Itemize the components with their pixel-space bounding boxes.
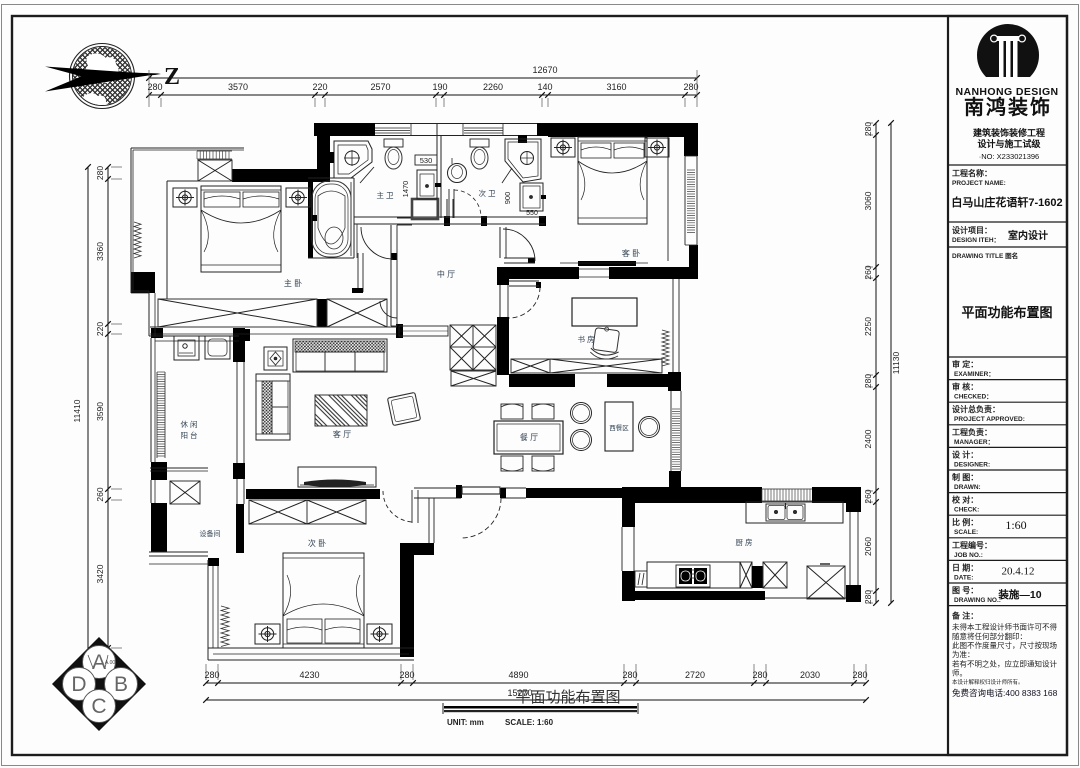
svg-text:免费咨询电话:400 8383 168: 免费咨询电话:400 8383 168 — [952, 688, 1058, 698]
svg-text:11410: 11410 — [72, 399, 82, 422]
svg-text:平面功能布置图: 平面功能布置图 — [515, 689, 620, 706]
svg-text:PROJECT APPROVED:: PROJECT APPROVED: — [954, 416, 1025, 423]
svg-text:南鸿装饰: 南鸿装饰 — [964, 95, 1052, 119]
svg-text:设计项目：: 设计项目： — [952, 225, 992, 235]
svg-text:280: 280 — [399, 670, 414, 680]
svg-text:MANAGER：: MANAGER： — [954, 439, 994, 446]
svg-text:280: 280 — [622, 670, 637, 680]
svg-text:280: 280 — [863, 122, 873, 136]
svg-text:设备间: 设备间 — [200, 529, 221, 538]
svg-text:图 号：: 图 号： — [952, 586, 978, 595]
svg-text:3160: 3160 — [606, 82, 626, 92]
svg-text:UNIT: mm: UNIT: mm — [447, 718, 484, 727]
svg-text:220: 220 — [312, 82, 327, 92]
svg-text:客 卧: 客 卧 — [622, 248, 640, 258]
svg-text:CHECKED：: CHECKED： — [954, 394, 993, 401]
svg-text:3590: 3590 — [95, 402, 105, 421]
svg-text:20.4.12: 20.4.12 — [1002, 565, 1035, 577]
svg-text:休 闲: 休 闲 — [180, 419, 197, 429]
svg-text:2400: 2400 — [863, 429, 873, 448]
svg-text:SCALE:: SCALE: — [954, 529, 978, 536]
svg-text:工程名称：: 工程名称： — [952, 168, 992, 178]
svg-text:DESIGNER:: DESIGNER: — [954, 461, 990, 468]
svg-text:2030: 2030 — [800, 670, 820, 680]
svg-text:DATE:: DATE: — [954, 574, 973, 581]
svg-text:280: 280 — [863, 374, 873, 388]
svg-text:A.00: A.00 — [105, 660, 116, 666]
svg-text:280: 280 — [683, 82, 698, 92]
svg-text:190: 190 — [432, 82, 447, 92]
svg-text:审 定：: 审 定： — [952, 359, 978, 369]
svg-text:中 厅: 中 厅 — [437, 269, 455, 279]
svg-text:日 期：: 日 期： — [952, 562, 978, 572]
svg-text:比 例：: 比 例： — [952, 517, 978, 527]
svg-text:D: D — [71, 673, 86, 696]
svg-text:1470: 1470 — [401, 181, 410, 198]
svg-text:280: 280 — [95, 166, 105, 180]
svg-text:·NO: X233021396: ·NO: X233021396 — [979, 152, 1039, 161]
svg-text:室内设计: 室内设计 — [1008, 229, 1048, 242]
svg-text:SCALE: 1:60: SCALE: 1:60 — [505, 718, 554, 727]
svg-text:CHECK:: CHECK: — [954, 507, 979, 514]
svg-text:DESIGN ITEH：: DESIGN ITEH： — [952, 237, 1000, 244]
svg-text:书 房: 书 房 — [577, 334, 594, 344]
svg-text:280: 280 — [863, 590, 873, 604]
svg-text:280: 280 — [752, 670, 767, 680]
svg-text:校 对：: 校 对： — [952, 495, 978, 505]
svg-text:师。: 师。 — [952, 668, 967, 678]
svg-text:未得本工程设计师书面许可不得: 未得本工程设计师书面许可不得 — [952, 622, 1057, 632]
svg-text:2720: 2720 — [685, 670, 705, 680]
svg-text:3570: 3570 — [228, 82, 248, 92]
svg-text:白马山庄花语轩7-1602: 白马山庄花语轩7-1602 — [951, 195, 1062, 209]
svg-text:本设计解释权归设计师所有。: 本设计解释权归设计师所有。 — [952, 678, 1024, 686]
svg-text:DRAWING NO.:: DRAWING NO.: — [954, 597, 1001, 604]
svg-text:3360: 3360 — [95, 242, 105, 261]
svg-text:550: 550 — [526, 210, 538, 217]
svg-text:设计与施工试级: 设计与施工试级 — [977, 138, 1041, 149]
svg-text:280: 280 — [204, 670, 219, 680]
svg-text:厨 房: 厨 房 — [735, 537, 752, 547]
svg-text:西餐区: 西餐区 — [609, 423, 629, 432]
svg-text:260: 260 — [95, 487, 105, 501]
svg-text:设 计：: 设 计： — [952, 449, 978, 459]
svg-text:900: 900 — [503, 192, 512, 205]
svg-text:装施—10: 装施—10 — [997, 588, 1041, 601]
svg-text:2260: 2260 — [483, 82, 503, 92]
svg-text:280: 280 — [852, 670, 867, 680]
svg-text:4230: 4230 — [299, 670, 319, 680]
svg-text:设计总负责：: 设计总负责： — [952, 404, 1000, 414]
svg-text:主 卫: 主 卫 — [376, 190, 394, 200]
svg-text:11130: 11130 — [891, 352, 901, 375]
svg-text:主 卧: 主 卧 — [284, 278, 302, 288]
svg-text:140: 140 — [537, 82, 552, 92]
svg-text:工程编号：: 工程编号： — [952, 540, 992, 550]
svg-text:3060: 3060 — [863, 191, 873, 210]
svg-text:2060: 2060 — [863, 537, 873, 556]
svg-text:4890: 4890 — [508, 670, 528, 680]
svg-text:阳 台: 阳 台 — [180, 430, 197, 440]
svg-text:B: B — [114, 673, 128, 696]
svg-text:次 卫: 次 卫 — [478, 188, 496, 198]
svg-text:平面功能布置图: 平面功能布置图 — [961, 305, 1052, 320]
svg-text:530: 530 — [420, 156, 433, 165]
svg-text:DRAWN:: DRAWN: — [954, 484, 981, 491]
svg-text:客 厅: 客 厅 — [333, 429, 351, 439]
svg-text:建筑装饰装修工程: 建筑装饰装修工程 — [973, 127, 1045, 138]
svg-text:260: 260 — [863, 489, 873, 503]
svg-text:1:60: 1:60 — [1005, 518, 1026, 532]
svg-text:若有不明之处，应立即通知设计: 若有不明之处，应立即通知设计 — [952, 658, 1057, 668]
svg-text:PROJECT NAME:: PROJECT NAME: — [952, 180, 1006, 187]
svg-text:2250: 2250 — [863, 317, 873, 336]
svg-text:2570: 2570 — [370, 82, 390, 92]
svg-text:制 图：: 制 图： — [952, 472, 978, 482]
svg-text:EXAMINER：: EXAMINER： — [954, 371, 995, 378]
svg-text:280: 280 — [147, 82, 162, 92]
svg-text:12670: 12670 — [532, 65, 557, 75]
svg-text:备 注：: 备 注： — [951, 611, 978, 621]
svg-text:JOB NO.:: JOB NO.: — [954, 552, 983, 559]
svg-text:审 核：: 审 核： — [952, 382, 978, 392]
svg-text:工程负责：: 工程负责： — [952, 427, 992, 437]
svg-text:C: C — [91, 695, 106, 718]
svg-text:随意将任何部分翻印：: 随意将任何部分翻印： — [952, 631, 1027, 641]
svg-text:220: 220 — [95, 322, 105, 336]
svg-text:Z: Z — [164, 64, 180, 90]
svg-text:260: 260 — [863, 265, 873, 279]
svg-text:DRAWING TITLE 图名: DRAWING TITLE 图名 — [952, 251, 1018, 260]
svg-text:为准：: 为准： — [952, 649, 975, 659]
svg-text:餐 厅: 餐 厅 — [520, 433, 538, 442]
svg-text:3420: 3420 — [95, 564, 105, 583]
svg-text:次 卧: 次 卧 — [308, 538, 326, 548]
svg-text:此图不作度量尺寸，尺寸按现场: 此图不作度量尺寸，尺寸按现场 — [952, 640, 1057, 650]
